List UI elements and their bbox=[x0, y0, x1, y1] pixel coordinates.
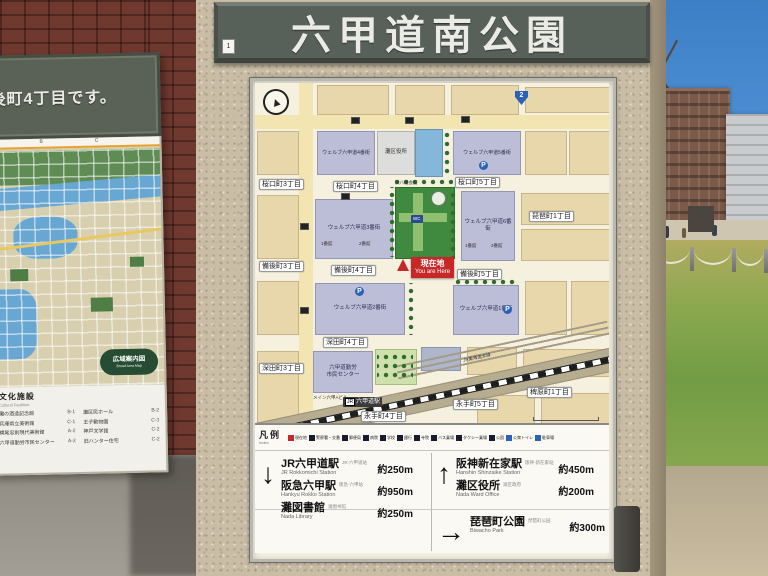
legend-item-icon bbox=[342, 435, 348, 441]
grid-letter: B bbox=[39, 139, 43, 147]
direction-texts: 灘区役所 滩区政府 Nada Ward Office bbox=[456, 481, 521, 499]
background-building-brown bbox=[658, 88, 730, 225]
facility-row: 旧ハンター住宅 C-2 bbox=[84, 436, 160, 445]
legend-item-icon bbox=[309, 435, 315, 441]
direction-entry: 灘図書館 滩图书馆 Nada Library 約250m bbox=[281, 503, 413, 521]
tree-row bbox=[377, 351, 413, 381]
distance: 約300m bbox=[569, 519, 605, 534]
up-arrow-icon: ↑ bbox=[437, 459, 451, 503]
legend-item-icon bbox=[414, 435, 420, 441]
you-are-here-ja: 現在地 bbox=[415, 259, 450, 269]
facility-row: 灘の酒造記念館 B-1 bbox=[0, 409, 75, 418]
directions-north: ↑ 阪神新在家駅 阪神·新在家站 Hanshin Shinzaike Stati… bbox=[437, 459, 605, 503]
legend-swatch bbox=[62, 378, 69, 385]
destination-ja: 灘区役所 bbox=[456, 481, 500, 492]
map-block: ウェルブ六甲道6番街 bbox=[461, 191, 515, 261]
destination-ja: 琵琶町公園 bbox=[470, 517, 525, 528]
facility-row: 兵庫県立美術館 C-1 bbox=[0, 419, 75, 428]
direction-texts: 灘図書館 滩图书馆 Nada Library bbox=[281, 503, 346, 521]
legend-item-label: 警察署・交番 bbox=[316, 435, 340, 441]
direction-entries: JR六甲道駅 JR·六甲道站 JR Rokkomichi Station 約25… bbox=[281, 459, 413, 525]
left-sign-header-text: 備後町4丁目です。 bbox=[0, 83, 117, 110]
legend-item-label: 寺院 bbox=[421, 435, 429, 441]
map-block: ウェルブ六甲道3番街 bbox=[315, 199, 393, 259]
destination-en: Biwacho Park bbox=[470, 528, 551, 535]
map-icon bbox=[405, 117, 414, 124]
directions-east: → 琵琶町公園 琵琶町公园 Biwacho Park 約300m bbox=[437, 517, 605, 547]
facility-row: 神戸文学館 C-2 bbox=[83, 426, 159, 435]
legend-swatch bbox=[73, 378, 80, 385]
map-block bbox=[317, 85, 389, 115]
legend-item: 駐車場 bbox=[535, 435, 554, 441]
monument bbox=[688, 206, 714, 232]
street-name-label: 備後町5丁目 bbox=[457, 269, 502, 280]
destination-note: 阪急·六甲站 bbox=[339, 482, 363, 487]
direction-texts: 琵琶町公園 琵琶町公园 Biwacho Park bbox=[470, 517, 551, 535]
direction-entry: 阪急六甲駅 阪急·六甲站 Hankyu Rokko Station 約950m bbox=[281, 481, 413, 499]
legend-item: 病院 bbox=[363, 435, 378, 441]
street-name-label: 琵琶町1丁目 bbox=[529, 211, 574, 222]
legend-item-icon bbox=[456, 435, 462, 441]
legend-item-icon bbox=[363, 435, 369, 441]
park-name-title: 六甲道南公園 bbox=[291, 3, 573, 61]
destination-en: JR Rokkomichi Station bbox=[281, 470, 367, 477]
street-name-label: 桜口町3丁目 bbox=[259, 179, 304, 190]
grid-letter: C bbox=[95, 138, 99, 146]
legend-swatch bbox=[7, 379, 14, 386]
facility-name: 六甲道勤労市民センター bbox=[0, 438, 55, 446]
badge-subtitle: Broad Area Map bbox=[116, 363, 141, 368]
distance: 約250m bbox=[377, 505, 413, 520]
map-small-label: 2番館 bbox=[359, 241, 371, 247]
legend-swatch bbox=[18, 379, 25, 386]
legend-item-label: 駐車場 bbox=[542, 435, 554, 441]
map-small-label: 浜八幡会館 bbox=[395, 180, 418, 186]
station-name: 六甲道駅 bbox=[356, 398, 380, 406]
map-block bbox=[395, 187, 455, 259]
dark-post bbox=[614, 506, 640, 572]
background-building-white bbox=[726, 114, 768, 226]
legend-item-icon bbox=[397, 435, 403, 441]
facility-name: 灘区民ホール bbox=[83, 408, 113, 416]
street-name-label: 永手町5丁目 bbox=[453, 399, 498, 410]
map-block bbox=[525, 131, 567, 175]
map-block bbox=[451, 85, 519, 115]
photo-of-park-map-signboard: 備後町4丁目です。 B C 広域案内図 Broad Area Map bbox=[0, 0, 768, 576]
adjacent-area-map-signboard: 備後町4丁目です。 B C 広域案内図 Broad Area Map bbox=[0, 52, 168, 476]
left-sign-header: 備後町4丁目です。 bbox=[0, 52, 161, 140]
legend-item-icon bbox=[489, 435, 495, 441]
direction-texts: JR六甲道駅 JR·六甲道站 JR Rokkomichi Station bbox=[281, 459, 367, 477]
destination-note: 琵琶町公园 bbox=[528, 518, 551, 523]
station-label: JR 六甲道駅 bbox=[343, 397, 382, 407]
map-block bbox=[569, 131, 609, 175]
destination-note: 阪神·新在家站 bbox=[525, 460, 554, 465]
directions-south: ↓ JR六甲道駅 JR·六甲道站 JR Rokkomichi Station 約… bbox=[261, 459, 427, 525]
destination-note: 滩区政府 bbox=[503, 482, 521, 487]
legend-swatch bbox=[95, 377, 102, 384]
you-are-here-label: 現在地 You are Here bbox=[411, 257, 454, 278]
fence-post bbox=[764, 249, 768, 273]
you-are-here-en: You are Here bbox=[415, 269, 450, 276]
facility-name: 王子動物園 bbox=[83, 418, 108, 426]
legend-title: 凡例 bbox=[259, 431, 281, 440]
map-icon bbox=[341, 193, 350, 200]
facility-grid-ref: B-1 bbox=[67, 409, 75, 416]
map-block: ウェルブ六甲道4番街 bbox=[317, 131, 375, 175]
legend-item-label: 病院 bbox=[370, 435, 378, 441]
destination-en: Nada Ward Office bbox=[456, 492, 521, 499]
legend-item-label: タクシー乗場 bbox=[463, 435, 487, 441]
down-arrow-icon: ↓ bbox=[261, 459, 275, 525]
legend-item: 学校 bbox=[380, 435, 395, 441]
street-name-label: 備後町3丁目 bbox=[259, 261, 304, 272]
legend-items: 現在地 警察署・交番 郵便局 病院 学校 bbox=[288, 435, 554, 441]
distance: 約200m bbox=[558, 483, 594, 498]
map-small-label: 2番館 bbox=[491, 243, 503, 249]
street-name-label: 稗原町1丁目 bbox=[527, 387, 572, 398]
legend-subtitle: Index bbox=[259, 440, 281, 445]
direction-entry: 阪神新在家駅 阪神·新在家站 Hanshin Shinzaike Station… bbox=[456, 459, 594, 477]
street-name-label: 永手町4丁目 bbox=[361, 411, 406, 422]
destination-en: Nada Library bbox=[281, 514, 346, 521]
facility-name: 兵庫県立美術館 bbox=[0, 419, 34, 427]
left-sign-area-map: B C 広域案内図 Broad Area Map bbox=[0, 136, 167, 388]
map-block bbox=[521, 229, 609, 261]
map-icon bbox=[461, 116, 470, 123]
legend-item-label: 郵便局 bbox=[349, 435, 361, 441]
map-icon: WC bbox=[411, 215, 423, 223]
distance: 約250m bbox=[377, 461, 413, 476]
facility-grid-ref: C-3 bbox=[151, 417, 159, 424]
tree-row bbox=[407, 283, 415, 335]
destination-ja: 阪神新在家駅 bbox=[456, 459, 522, 470]
map-block bbox=[257, 195, 299, 259]
jr-logo: JR bbox=[345, 398, 355, 406]
legend-item: 銀行 bbox=[397, 435, 412, 441]
destination-en: Hankyu Rokko Station bbox=[281, 492, 363, 499]
map-block: 六甲道勤労 市民センター bbox=[313, 351, 373, 393]
map-small-label: 1番館 bbox=[465, 243, 477, 249]
map-icon: P bbox=[503, 305, 512, 314]
facility-row: 王子動物園 C-3 bbox=[83, 417, 159, 426]
tree-row bbox=[443, 131, 451, 175]
map-icon bbox=[431, 191, 446, 206]
facility-grid-ref: B-2 bbox=[151, 407, 159, 414]
direction-entries: 琵琶町公園 琵琶町公园 Biwacho Park 約300m bbox=[470, 517, 605, 547]
facility-grid-ref: A-2 bbox=[68, 428, 76, 435]
right-arrow-icon: → bbox=[437, 517, 465, 547]
map-block bbox=[395, 85, 445, 115]
legend-item-icon bbox=[380, 435, 386, 441]
map-block bbox=[415, 129, 443, 177]
destination-ja: 阪急六甲駅 bbox=[281, 481, 336, 492]
legend-item: タクシー乗場 bbox=[456, 435, 487, 441]
map-block bbox=[399, 213, 447, 222]
legend-swatch bbox=[84, 378, 91, 385]
legend-item: 寺院 bbox=[414, 435, 429, 441]
map-icon: P bbox=[355, 287, 364, 296]
map-icon bbox=[351, 117, 360, 124]
title-plate-number: 1 bbox=[222, 39, 235, 54]
directions-panel: ↓ JR六甲道駅 JR·六甲道站 JR Rokkomichi Station 約… bbox=[255, 451, 609, 553]
legend-item-icon bbox=[288, 435, 294, 441]
map-block bbox=[257, 131, 299, 175]
map-block bbox=[525, 281, 567, 335]
distance: 約450m bbox=[558, 461, 594, 476]
legend-item: バス乗場 bbox=[431, 435, 454, 441]
legend-swatch bbox=[29, 379, 36, 386]
map-block bbox=[257, 351, 299, 423]
scale-bar bbox=[533, 417, 599, 421]
map-park-patch bbox=[10, 269, 28, 281]
tree-row bbox=[449, 187, 457, 257]
facility-grid-ref: C-1 bbox=[67, 419, 75, 426]
map-block: 灘区役所 bbox=[377, 131, 415, 175]
direction-entry: 琵琶町公園 琵琶町公园 Biwacho Park 約300m bbox=[470, 517, 605, 535]
tree-row bbox=[388, 187, 396, 257]
facility-grid-ref: C-2 bbox=[152, 436, 160, 443]
legend-item-label: 学校 bbox=[387, 435, 395, 441]
facility-grid-ref: A-2 bbox=[68, 438, 76, 445]
map-block bbox=[525, 87, 609, 113]
legend-item: 公衆トイレ bbox=[506, 435, 533, 441]
neighborhood-map: ウェルブ六甲道4番街灘区役所ウェルブ六甲道5番街ウェルブ六甲道3番街ウェルブ六甲… bbox=[255, 83, 609, 423]
divider bbox=[431, 453, 432, 551]
legend-item: 現在地 bbox=[288, 435, 307, 441]
map-panel: ウェルブ六甲道4番街灘区役所ウェルブ六甲道5番街ウェルブ六甲道3番街ウェルブ六甲… bbox=[250, 78, 616, 562]
street-name-label: 備後町4丁目 bbox=[331, 265, 376, 276]
legend-item: 警察署・交番 bbox=[309, 435, 340, 441]
legend-item-icon bbox=[431, 435, 437, 441]
map-block: ウェルブ六甲道5番街 bbox=[453, 131, 521, 175]
map-icon bbox=[300, 223, 309, 230]
map-small-label: 1番館 bbox=[321, 241, 333, 247]
destination-ja: JR六甲道駅 bbox=[281, 459, 339, 470]
direction-entry: JR六甲道駅 JR·六甲道站 JR Rokkomichi Station 約25… bbox=[281, 459, 413, 477]
destination-note: 滩图书馆 bbox=[328, 504, 346, 509]
facility-row: 灘区民ホール B-2 bbox=[83, 407, 159, 416]
direction-entries: 阪神新在家駅 阪神·新在家站 Hanshin Shinzaike Station… bbox=[456, 459, 594, 503]
destination-en: Hanshin Shinzaike Station bbox=[456, 470, 554, 477]
legend-swatch bbox=[0, 380, 4, 387]
direction-entry: 灘区役所 滩区政府 Nada Ward Office 約200m bbox=[456, 481, 594, 499]
north-compass-icon: ▲ bbox=[259, 85, 292, 118]
you-are-here-marker bbox=[397, 259, 409, 271]
map-park-patch bbox=[130, 257, 144, 267]
street-name-label: 桜口町4丁目 bbox=[333, 181, 378, 192]
legend-bar: 凡例 Index 現在地 警察署・交番 郵便局 病院 bbox=[255, 423, 609, 451]
sign-title-bar: 六甲道南公園 1 bbox=[214, 2, 650, 63]
direction-texts: 阪急六甲駅 阪急·六甲站 Hankyu Rokko Station bbox=[281, 481, 363, 499]
direction-texts: 阪神新在家駅 阪神·新在家站 Hanshin Shinzaike Station bbox=[456, 459, 554, 477]
stone-frame-side-face bbox=[650, 0, 666, 576]
destination-ja: 灘図書館 bbox=[281, 503, 325, 514]
facility-name: 旧ハンター住宅 bbox=[84, 437, 119, 445]
legend-item-icon bbox=[506, 435, 512, 441]
facility-grid-ref: C-2 bbox=[151, 426, 159, 433]
legend-item-icon bbox=[535, 435, 541, 441]
legend-item: 公園 bbox=[489, 435, 504, 441]
map-icon: P bbox=[479, 161, 488, 170]
pedestrian bbox=[682, 228, 686, 238]
legend-item: 郵便局 bbox=[342, 435, 361, 441]
street-name-label: 桜口町5丁目 bbox=[455, 177, 500, 188]
map-block bbox=[257, 281, 299, 335]
facility-name: 神戸文学館 bbox=[83, 427, 108, 435]
facility-list: 灘の酒造記念館 B-1 兵庫県立美術館 C-1 横尾忠則現代美術館 A-2 六甲… bbox=[0, 407, 160, 448]
legend-item-label: 銀行 bbox=[404, 435, 412, 441]
facility-row: 横尾忠則現代美術館 A-2 bbox=[0, 428, 76, 437]
legend-item-label: 公衆トイレ bbox=[513, 435, 533, 441]
destination-note: JR·六甲道站 bbox=[342, 460, 367, 465]
legend-item-label: バス乗場 bbox=[438, 435, 454, 441]
facility-name: 横尾忠則現代美術館 bbox=[0, 429, 45, 437]
legend-swatch bbox=[51, 378, 58, 385]
left-sign-facility-list: 文化施設 Cultural Facilities 灘の酒造記念館 B-1 兵庫県… bbox=[0, 384, 168, 476]
facility-name: 灘の酒造記念館 bbox=[0, 410, 34, 418]
legend-item-label: 公園 bbox=[496, 435, 504, 441]
broad-area-map-badge: 広域案内図 Broad Area Map bbox=[100, 348, 159, 375]
distance: 約950m bbox=[377, 483, 413, 498]
legend-item-label: 現在地 bbox=[295, 435, 307, 441]
map-park-patch bbox=[91, 297, 113, 311]
map-icon bbox=[300, 307, 309, 314]
facility-row: 六甲道勤労市民センター A-2 bbox=[0, 438, 76, 447]
street-name-label: 深田町4丁目 bbox=[323, 337, 368, 348]
legend-swatch bbox=[40, 379, 47, 386]
legend-heading: 凡例 Index bbox=[259, 431, 281, 445]
street-name-label: 深田町3丁目 bbox=[259, 363, 304, 374]
